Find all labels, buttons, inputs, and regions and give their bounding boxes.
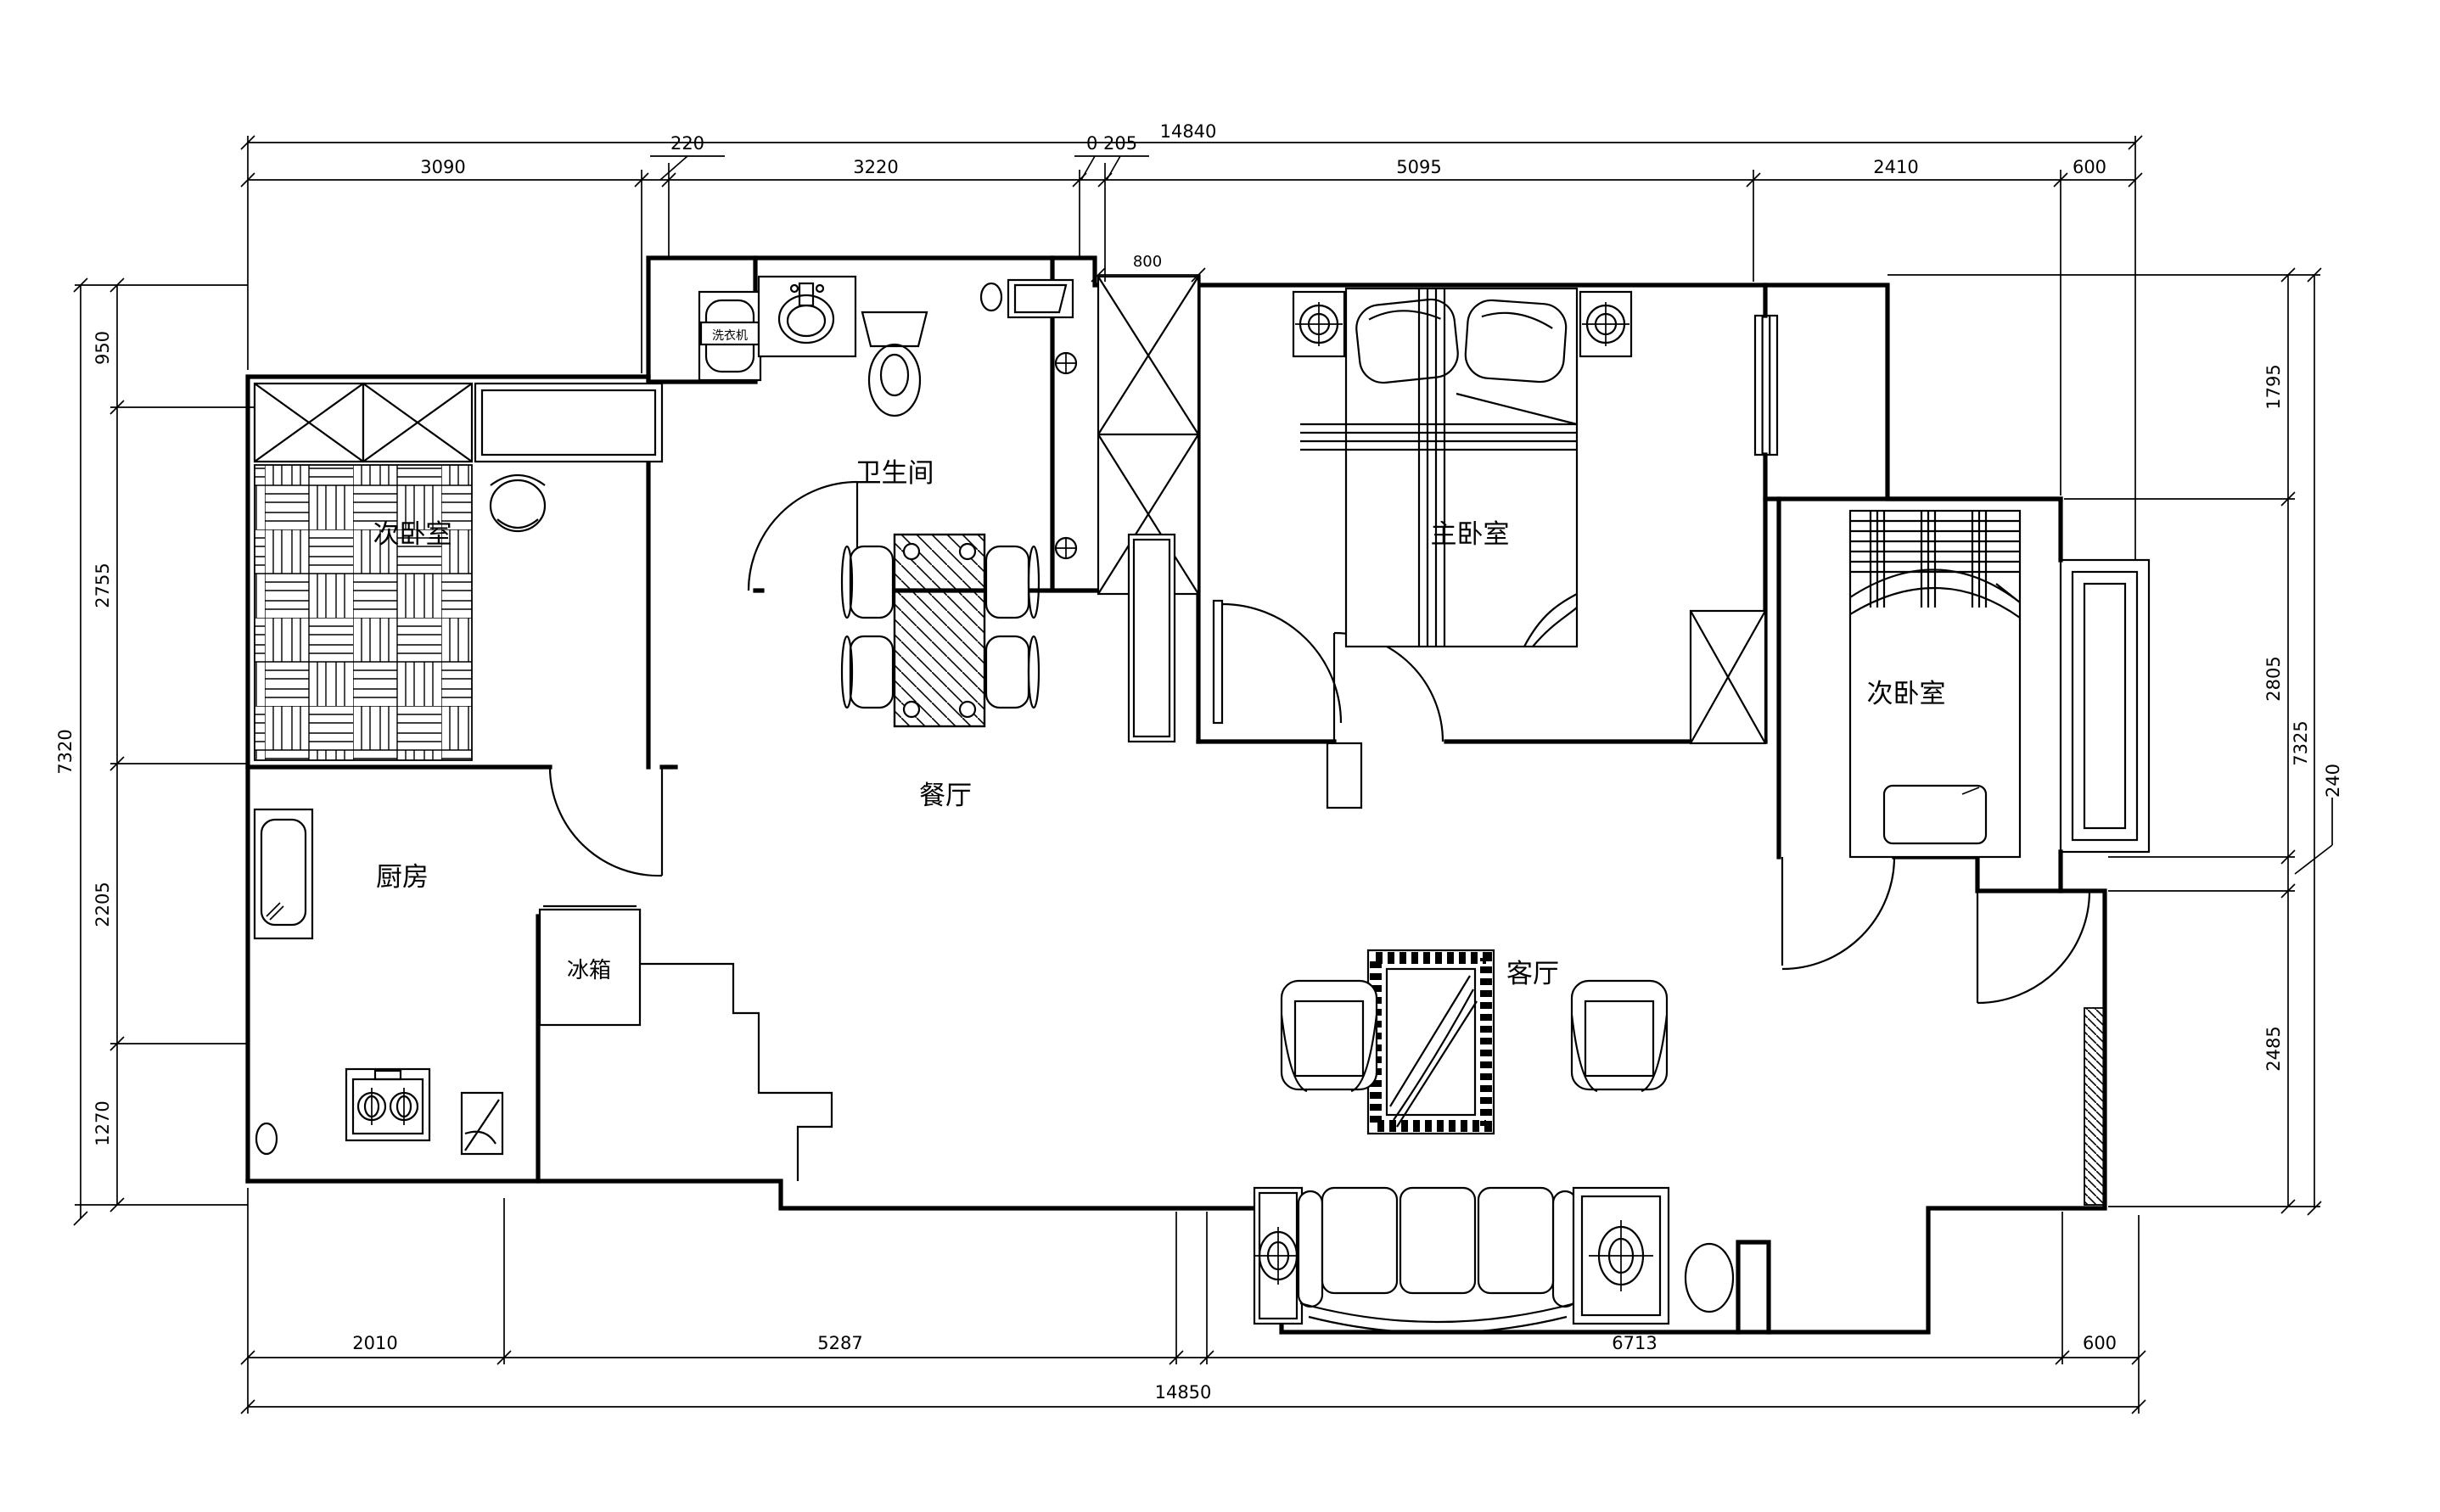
armchair-right <box>1572 981 1667 1091</box>
dim-left-seg-1: 2755 <box>93 563 113 608</box>
dim-right-overall: 7325 <box>2291 720 2311 765</box>
dim-top-seg-2: 5095 <box>1396 157 1441 177</box>
kitchen-sink <box>255 809 312 938</box>
corridor-sink <box>981 280 1073 317</box>
nightstand-left <box>1293 292 1344 356</box>
door-arc-hall <box>1214 601 1341 723</box>
door-arc-entry <box>1977 891 2089 1003</box>
room-label-bathroom: 卫生间 <box>855 458 934 489</box>
wall-stub <box>1738 1242 1769 1332</box>
kitchen-drain <box>256 1123 277 1154</box>
dim-bottom-seg-3: 600 <box>2083 1333 2117 1353</box>
stove <box>346 1069 429 1140</box>
bathroom-sink <box>759 277 855 356</box>
side-table-right <box>1573 1188 1669 1324</box>
dining-table <box>895 535 984 726</box>
dim-left-seg-2: 2205 <box>93 882 113 927</box>
room-label-bedroom-left: 次卧室 <box>373 519 452 550</box>
round-stool <box>1686 1244 1733 1312</box>
floor-plan-page: 洗衣机 <box>0 0 2440 1512</box>
dim-left-seg-3: 1270 <box>93 1100 113 1145</box>
dim-top-seg-3: 2410 <box>1873 157 1918 177</box>
corner-cabinet <box>462 1093 502 1154</box>
fridge-label: 冰箱 <box>567 958 611 983</box>
side-table-left <box>1254 1188 1302 1324</box>
dim-left-overall: 7320 <box>55 729 76 774</box>
dim-shaft-width: 800 <box>1133 253 1162 271</box>
washer-label: 洗衣机 <box>712 329 748 343</box>
shoe-cabinet <box>1327 743 1361 808</box>
window-master-bedroom <box>1755 316 1777 455</box>
door-arc-master-bedroom <box>1334 633 1443 742</box>
toilet <box>862 312 927 416</box>
floor-drain-2 <box>1056 538 1076 558</box>
nightstand-right <box>1580 292 1631 356</box>
floor-parquet <box>255 465 472 760</box>
room-label-kitchen: 厨房 <box>376 862 429 893</box>
hatched-wall-entry <box>2084 1008 2105 1205</box>
room-label-master-bedroom: 主卧室 <box>1431 519 1510 550</box>
dim-bottom-seg-2: 6713 <box>1612 1333 1657 1353</box>
dim-bottom-overall: 14850 <box>1155 1382 1212 1403</box>
door-arc-bedroom-right <box>1782 857 1894 969</box>
washing-machine: 洗衣机 <box>699 292 760 380</box>
room-label-bedroom-right: 次卧室 <box>1867 679 1946 709</box>
dim-bottom-seg-1: 5287 <box>817 1333 862 1353</box>
dim-top-offset-a: 220 <box>670 133 704 154</box>
dim-top-offset-b: 0 205 <box>1086 133 1137 154</box>
dim-bottom-seg-0: 2010 <box>352 1333 397 1353</box>
room-label-dining: 餐厅 <box>919 781 972 811</box>
dim-right-seg-2: 2485 <box>2263 1026 2284 1071</box>
floor-drain-1 <box>1056 353 1076 373</box>
bay-window <box>2061 560 2149 852</box>
wardrobe-left-bedroom <box>255 384 662 462</box>
wardrobe-master <box>1691 611 1765 743</box>
dim-right-offset: 240 <box>2323 764 2343 798</box>
tv-rug <box>1368 950 1494 1134</box>
chair-desk <box>491 475 545 531</box>
dim-right-seg-0: 1795 <box>2263 364 2284 409</box>
dim-top-seg-0: 3090 <box>420 157 465 177</box>
floor-plan-canvas: 洗衣机 <box>0 0 2440 1512</box>
hall-cabinet <box>1129 535 1175 742</box>
armchair-left <box>1282 981 1377 1091</box>
door-arc-bedroom-left <box>550 767 662 876</box>
dim-top-overall: 14840 <box>1160 121 1217 142</box>
fridge: 冰箱 <box>540 906 640 1025</box>
room-label-living: 客厅 <box>1506 959 1559 989</box>
dim-left-seg-0: 950 <box>93 331 113 365</box>
door-arc-bathroom <box>749 482 857 591</box>
sofa <box>1299 1188 1577 1333</box>
dim-right-seg-1: 2805 <box>2263 656 2284 701</box>
dim-top-seg-4: 600 <box>2073 157 2106 177</box>
dim-top-seg-1: 3220 <box>853 157 898 177</box>
